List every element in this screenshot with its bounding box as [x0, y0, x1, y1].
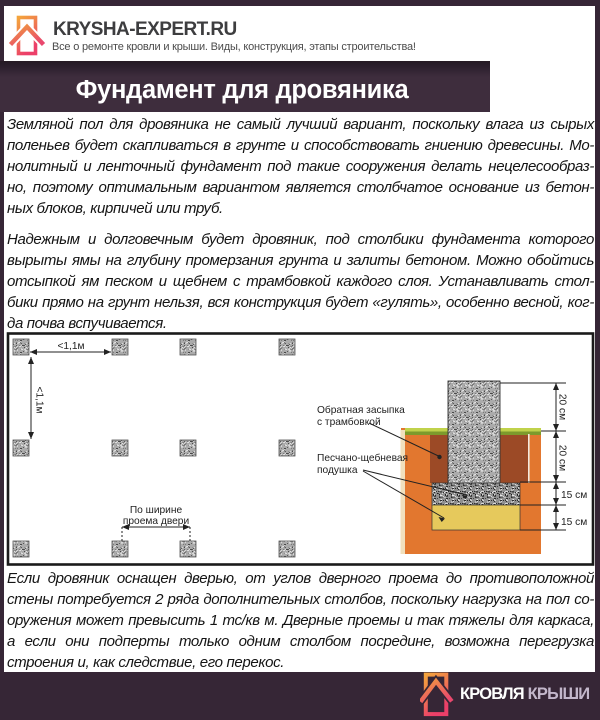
svg-text:20 см: 20 см — [557, 445, 568, 471]
svg-text:проема двери: проема двери — [123, 516, 189, 527]
svg-text:20 см: 20 см — [557, 394, 568, 420]
svg-text:с трамбовкой: с трамбовкой — [317, 416, 381, 428]
svg-text:<1,1м: <1,1м — [34, 386, 45, 413]
svg-text:По ширине: По ширине — [130, 505, 183, 516]
svg-text:Обратная засыпка: Обратная засыпка — [317, 404, 405, 416]
svg-text:Песчано-щебневая: Песчано-щебневая — [317, 452, 408, 464]
svg-text:15 см: 15 см — [561, 517, 587, 528]
svg-text:<1,1м: <1,1м — [57, 341, 84, 352]
svg-text:подушка: подушка — [317, 465, 358, 476]
svg-text:15 см: 15 см — [561, 490, 587, 501]
